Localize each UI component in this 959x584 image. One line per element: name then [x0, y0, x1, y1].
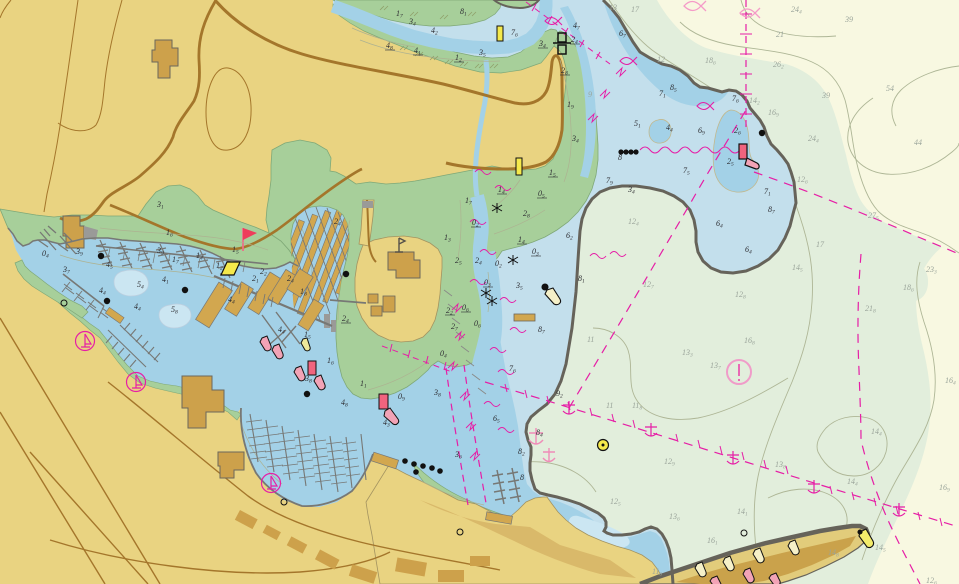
- svg-text:54: 54: [886, 84, 894, 93]
- svg-text:39: 39: [821, 91, 830, 100]
- svg-text:21: 21: [776, 30, 784, 39]
- svg-text:8: 8: [618, 153, 622, 162]
- svg-text:13: 13: [609, 3, 617, 12]
- svg-text:11: 11: [606, 401, 613, 410]
- svg-text:12: 12: [657, 55, 665, 64]
- svg-text:17: 17: [816, 240, 825, 249]
- svg-text:39: 39: [844, 15, 853, 24]
- svg-text:17: 17: [631, 5, 640, 14]
- svg-text:8: 8: [520, 473, 524, 482]
- svg-text:9: 9: [588, 90, 592, 99]
- svg-text:11: 11: [587, 335, 594, 344]
- svg-text:44: 44: [914, 138, 922, 147]
